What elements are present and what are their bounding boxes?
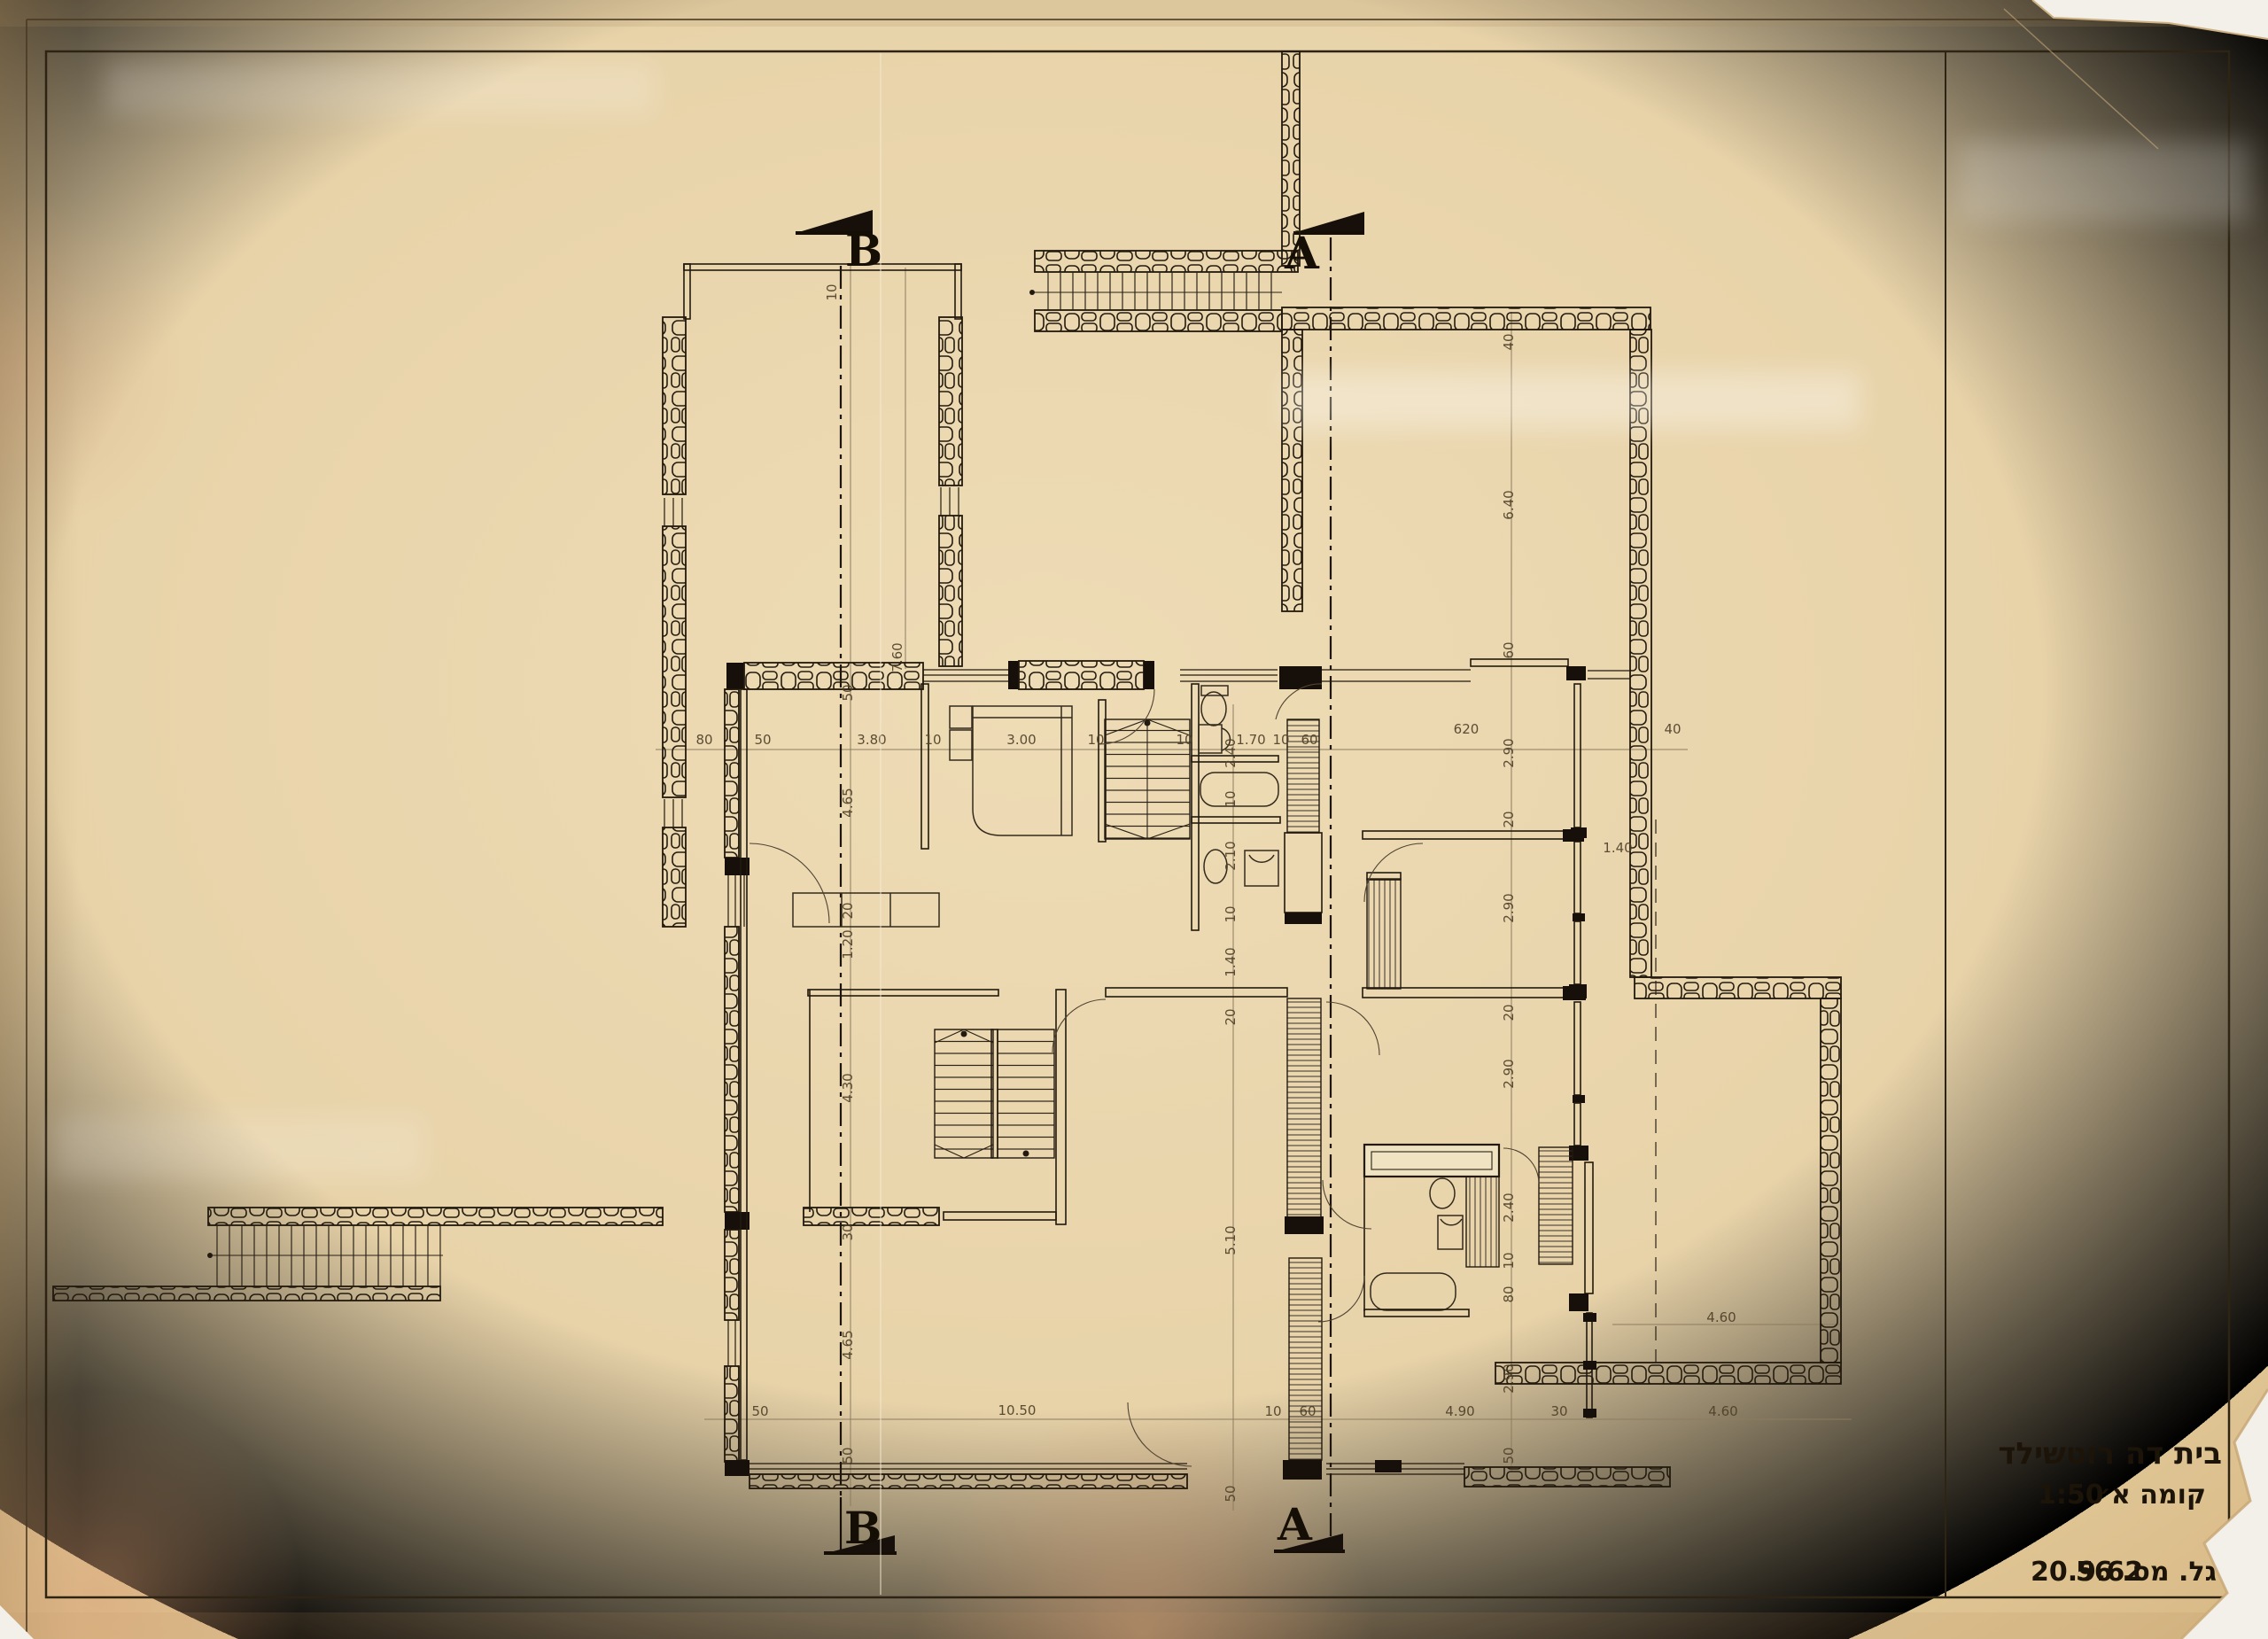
dimension-label: 7.60 <box>889 642 905 672</box>
dimension-label: 3.80 <box>857 732 886 748</box>
section-marker-letter: B <box>845 224 882 276</box>
dimension-label: 2.90 <box>1501 1363 1517 1393</box>
dimension-label: 1.70 <box>1236 732 1265 748</box>
dimension-label: 50 <box>751 1403 768 1419</box>
dimension-label: 4.60 <box>1708 1403 1737 1419</box>
dimension-label: 50 <box>1223 1485 1239 1502</box>
dimension-label: 1.20 <box>840 929 856 959</box>
dimension-label: 80 <box>1501 1286 1517 1302</box>
dimension-label: 620 <box>1454 721 1480 737</box>
dimension-label: 60 <box>1301 732 1317 748</box>
section-marker-letter: B <box>844 1502 882 1554</box>
dimension-label: 10 <box>1272 732 1289 748</box>
dimension-label: 80 <box>695 732 712 748</box>
dimension-label: 10 <box>824 284 840 300</box>
dimension-label: 10.50 <box>998 1402 1037 1418</box>
dimension-label: 2.40 <box>1501 1192 1517 1222</box>
dimension-label: 40 <box>1664 721 1681 737</box>
dimension-label: 10 <box>924 732 941 748</box>
dimension-label: 10 <box>1223 790 1239 807</box>
dimension-label: 2.40 <box>1223 738 1239 767</box>
dimension-label: 5.10 <box>1223 1225 1239 1254</box>
floor-plan-drawing: 107.60504.65201.204.30304.655080503.8010… <box>0 0 2268 1639</box>
dimension-label: 10 <box>1087 732 1104 748</box>
dimension-label: 1.40 <box>1603 840 1632 856</box>
project-title: בית דה רוטשילד <box>1998 1436 2222 1472</box>
sheet-date: 20.9.62 <box>2031 1557 2143 1588</box>
dimension-label: 4.65 <box>840 788 856 817</box>
dimension-label: 2.90 <box>1501 738 1517 767</box>
scale-label: 1:50 <box>2038 1480 2104 1511</box>
dimension-label: 3.00 <box>1006 732 1036 748</box>
dimension-label: 30 <box>840 1223 856 1240</box>
dimension-label: 4.60 <box>1706 1309 1736 1325</box>
dimension-label: 20 <box>1223 1008 1239 1025</box>
dimension-label: 2.10 <box>1223 841 1239 870</box>
dimension-label: 10 <box>1264 1403 1281 1419</box>
south-ramp-hatch <box>1289 1258 1322 1460</box>
dimension-label: 40 <box>1501 333 1517 350</box>
scanned-sheet: 107.60504.65201.204.30304.655080503.8010… <box>0 0 2268 1639</box>
dimension-label: 50 <box>840 684 856 701</box>
dimension-label: 10 <box>1176 732 1192 748</box>
dimension-label: 20 <box>1501 1004 1517 1021</box>
bedroom-closet-hatch <box>1367 879 1401 989</box>
dimension-label: 20 <box>1501 811 1517 827</box>
section-marker-letter: A <box>1284 227 1320 279</box>
dimension-label: 2.90 <box>1501 1059 1517 1088</box>
dimension-label: 30 <box>1550 1403 1567 1419</box>
dimension-label: 1.40 <box>1223 947 1239 976</box>
dimension-label: 60 <box>1299 1403 1316 1419</box>
section-marker-letter: A <box>1277 1498 1313 1550</box>
dimension-label: 50 <box>1501 1447 1517 1464</box>
dimension-label: 2.90 <box>1501 893 1517 922</box>
dimension-label: 20 <box>840 902 856 919</box>
floor-label: קומה א׳ <box>2100 1480 2206 1511</box>
dimension-label: 10 <box>1501 1252 1517 1269</box>
dimension-label: 50 <box>840 1447 856 1464</box>
lower-staircase <box>935 1029 993 1158</box>
dimension-label: 60 <box>1501 641 1517 658</box>
dimension-label: 4.90 <box>1445 1403 1474 1419</box>
dimension-label: 4.30 <box>840 1073 856 1102</box>
dimension-label: 50 <box>754 732 771 748</box>
dimension-label: 10 <box>1223 905 1239 922</box>
hall-closet-hatch <box>1287 998 1321 1218</box>
dimension-label: 4.65 <box>840 1330 856 1359</box>
dimension-label: 6.40 <box>1501 490 1517 519</box>
